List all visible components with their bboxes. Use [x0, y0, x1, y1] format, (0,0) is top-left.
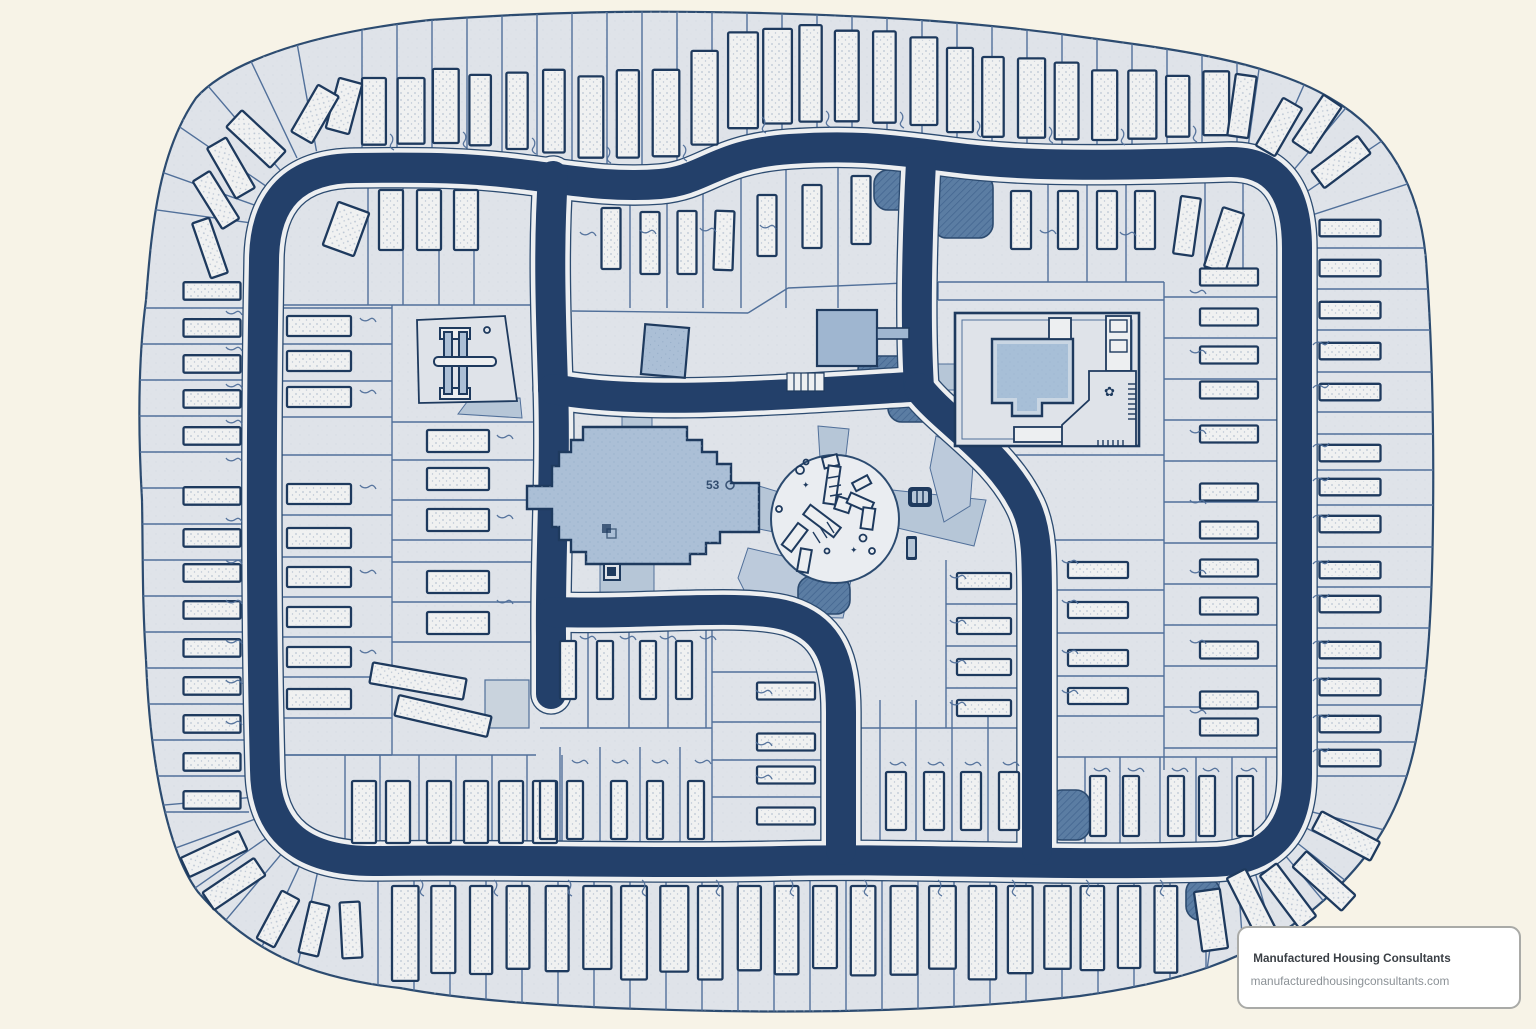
svg-text:Manufactured Housing Consultan: Manufactured Housing Consultants	[1253, 952, 1451, 965]
svg-text:✦: ✦	[802, 480, 810, 490]
svg-text:53: 53	[706, 478, 720, 492]
svg-text:manufacturedhousingconsultants: manufacturedhousingconsultants.com	[1251, 974, 1450, 988]
svg-text:✿: ✿	[1104, 384, 1115, 399]
svg-text:✦: ✦	[850, 545, 858, 555]
